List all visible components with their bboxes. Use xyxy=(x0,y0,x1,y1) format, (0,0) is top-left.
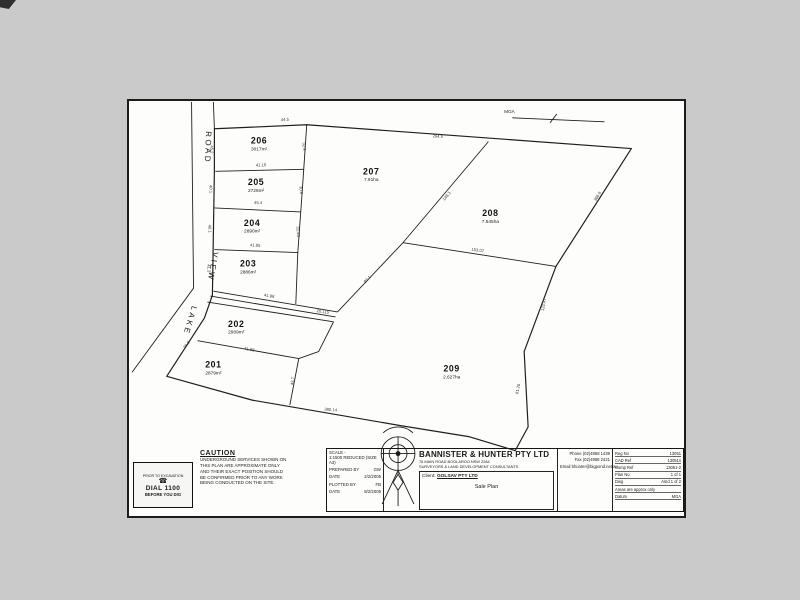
scale-row-value: 2/2/2005 xyxy=(364,474,381,479)
dimension-label: 45.4 xyxy=(254,200,263,205)
caution-title: CAUTION xyxy=(200,450,326,457)
lot-area-207: 7.91ha xyxy=(364,177,379,183)
firm-phone: Phone (02)4958 1439 xyxy=(560,451,610,456)
reference-value: 1 of 1 xyxy=(671,472,681,477)
north-reference: MGA xyxy=(504,109,604,123)
firm-name: BANNISTER & HUNTER PTY LTD xyxy=(419,450,554,459)
scale-value: 1:1500 REDUCED (SIZE A3) xyxy=(329,455,381,465)
scale-box: SCALE - 1:1500 REDUCED (SIZE A3) PREPARE… xyxy=(327,449,384,511)
lot-area-201: 2879m² xyxy=(205,370,222,376)
scanned-survey-plan-page: { "sheet": {"bg": "#fdfdfc", "page_bg": … xyxy=(0,0,800,600)
scale-row-value: 8/2/2005 xyxy=(364,489,381,494)
reference-row: DatumMGA xyxy=(615,493,681,500)
scale-row: PLOTTED BYFB xyxy=(329,482,381,487)
scale-row-label: DATE xyxy=(329,474,340,479)
dimension-label: 148.3 xyxy=(441,190,452,202)
dimension-label: 124.47 xyxy=(540,297,547,311)
logo-cell xyxy=(384,449,416,511)
lot-area-209: 2.627ha xyxy=(443,374,461,380)
reference-row: Areas are approx only xyxy=(615,486,681,493)
dimension-label: 30.9 xyxy=(298,186,304,195)
scale-row-value: FB xyxy=(376,482,382,487)
dimension-label: 41.58 xyxy=(244,346,256,353)
scale-row-label: DATE xyxy=(329,489,340,494)
scale-row-value: GW xyxy=(374,467,381,472)
lot-number-207: 207 xyxy=(363,166,379,176)
road-linework xyxy=(132,102,214,372)
dig-logo-main-text: DIAL 1100 xyxy=(146,485,181,492)
mga-north-label: MGA xyxy=(504,109,515,114)
reference-label: Plan No xyxy=(615,472,630,477)
dimension-label: 43.7 xyxy=(289,376,295,385)
lot-area-206: 3017m² xyxy=(251,147,268,153)
client-box: Client: GOLSAV PTY LTD Sale Plan xyxy=(419,471,554,510)
caution-text: UNDERGROUND SERVICES SHOWN ONTHIS PLAN A… xyxy=(200,457,326,486)
subdivision-boundary xyxy=(167,125,632,451)
reference-row: Comp Ref13051-2 xyxy=(615,464,681,471)
reference-label: CAD Ref xyxy=(615,458,631,463)
contact-cell: Phone (02)4958 1439 Fax (02)4958 2421 Em… xyxy=(558,449,613,511)
dimension-label: 32.9 xyxy=(301,142,307,151)
firm-cell: BANNISTER & HUNTER PTY LTD 76 MAIN ROAD … xyxy=(416,449,558,511)
lot-number-209: 209 xyxy=(443,363,459,373)
reference-label: Datum xyxy=(615,494,627,499)
reference-label: Dwg xyxy=(615,479,623,484)
references-cell: Reg No13051CAD Ref13051sComp Ref13051-2P… xyxy=(613,449,683,511)
lot-number-203: 203 xyxy=(240,258,256,268)
reference-row: CAD Ref13051s xyxy=(615,457,681,464)
reference-value: 13051s xyxy=(668,458,681,463)
reference-label: Comp Ref xyxy=(615,465,633,470)
dimension-label: 41.85 xyxy=(250,242,261,247)
scale-row: DATE2/2/2005 xyxy=(329,474,381,479)
road-label-road: ROAD xyxy=(203,131,213,164)
dimension-label: 41.15 xyxy=(256,162,267,167)
dimension-label: 41.98 xyxy=(264,292,276,299)
title-block: SCALE - 1:1500 REDUCED (SIZE A3) PREPARE… xyxy=(326,448,684,512)
lot-area-202: 2909m² xyxy=(228,330,245,336)
dimension-label: 264.5 xyxy=(433,133,444,139)
scale-row: PREPARED BYGW xyxy=(329,467,381,472)
dimension-label: 380.14 xyxy=(324,406,338,412)
dimension-label: 44.5 xyxy=(281,117,290,122)
firm-descriptor: SURVEYORS & LAND DEVELOPMENT CONSULTANTS xyxy=(419,464,554,469)
reference-rows: Reg No13051CAD Ref13051sComp Ref13051-2P… xyxy=(615,450,681,500)
firm-email: Email bhunter@bigpond.net.au xyxy=(560,464,610,469)
plan-sheet: MGA 2012879m²2022909m²2032886m²2042890m²… xyxy=(127,99,686,518)
reference-row: DwgAmd 1 of 2 xyxy=(615,479,681,486)
reference-label: Reg No xyxy=(615,451,629,456)
reference-value: MGA xyxy=(672,494,681,499)
dimension-label: 31.45 xyxy=(295,226,301,237)
caution-note: CAUTION UNDERGROUND SERVICES SHOWN ONTHI… xyxy=(200,450,326,486)
lot-number-204: 204 xyxy=(244,218,260,228)
reference-row: Reg No13051 xyxy=(615,450,681,457)
client-name: GOLSAV PTY LTD xyxy=(437,474,478,479)
lot-labels: 2012879m²2022909m²2032886m²2042890m²2052… xyxy=(205,136,499,381)
reference-value: Amd 1 of 2 xyxy=(661,479,681,484)
dimension-label: 40.1 xyxy=(208,185,213,194)
client-label: Client: xyxy=(422,474,436,479)
lot-number-206: 206 xyxy=(251,136,267,146)
scale-row-label: PREPARED BY xyxy=(329,467,359,472)
lot-number-208: 208 xyxy=(482,208,498,218)
lot-area-203: 2886m² xyxy=(240,269,257,275)
dial-before-you-dig-logo: PRIOR TO EXCAVATION ☎ DIAL 1100 BEFORE Y… xyxy=(133,462,193,508)
firm-fax: Fax (02)4958 2421 xyxy=(560,457,610,462)
lot-area-208: 7.545ha xyxy=(482,219,500,225)
reference-label: Areas are approx only xyxy=(615,487,655,492)
scale-rows: PREPARED BYGWDATE2/2/2005PLOTTED BYFBDAT… xyxy=(329,467,381,494)
lot-area-204: 2890m² xyxy=(244,229,261,235)
lot-number-202: 202 xyxy=(228,319,244,329)
reference-value: 13051 xyxy=(670,451,681,456)
lot-number-201: 201 xyxy=(205,359,221,369)
dimension-label: 153.07 xyxy=(471,247,485,254)
dig-logo-bottom-text: BEFORE YOU DIG xyxy=(145,492,181,497)
scan-corner-artifact xyxy=(0,0,16,9)
lot-number-205: 205 xyxy=(248,177,264,187)
scale-row-label: PLOTTED BY xyxy=(329,482,356,487)
telephone-icon: ☎ xyxy=(159,478,168,485)
reference-value: 13051-2 xyxy=(666,465,681,470)
dimension-label: 93.1 xyxy=(363,274,373,284)
lot-area-205: 2726m² xyxy=(248,188,265,194)
client-line: Client: GOLSAV PTY LTD xyxy=(422,474,551,479)
scale-row: DATE8/2/2005 xyxy=(329,489,381,494)
dimension-label: 40.1 xyxy=(207,225,212,234)
document-title: Sale Plan xyxy=(422,484,551,490)
dimension-label: 61.26 xyxy=(514,383,521,395)
reference-row: Plan No1 of 1 xyxy=(615,472,681,479)
caution-line: BEING CONDUCTED ON THE SITE. xyxy=(200,480,326,486)
